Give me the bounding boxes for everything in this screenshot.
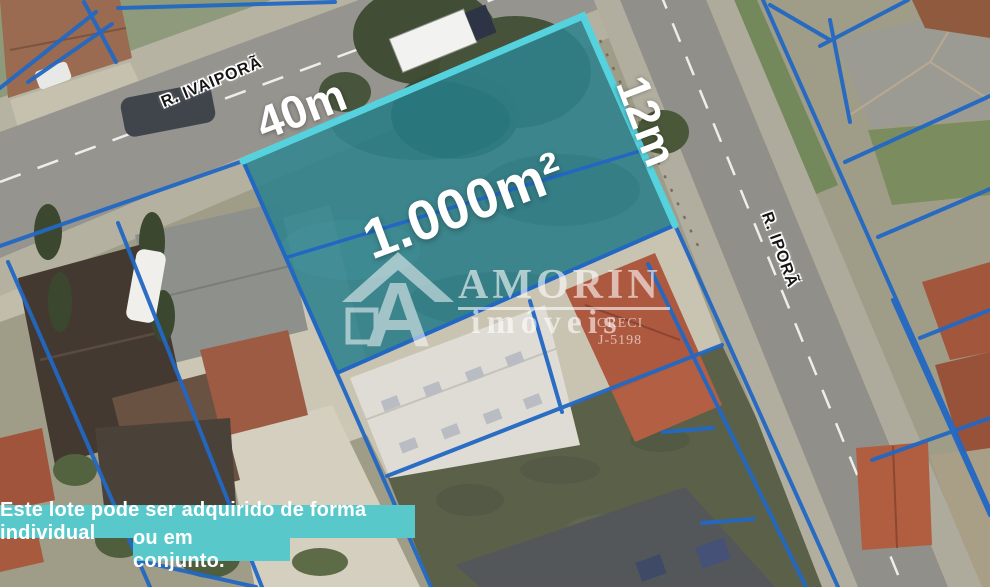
watermark-creci: CRECI J-5198 [597,316,643,350]
aerial-lot-advertisement: R. IVAIPORÃ R. IPORÃ 40m 12m 1.000m² A A… [0,0,990,587]
caption-line2: ou em conjunto. [133,538,290,561]
svg-text:A: A [365,264,431,352]
small-red-house-right [856,442,932,550]
watermark-brand: AMORIN [458,264,662,306]
watermark-creci-number: J-5198 [597,333,643,350]
amorin-house-logo-icon: A [338,248,458,352]
watermark-creci-label: CRECI [597,316,643,333]
